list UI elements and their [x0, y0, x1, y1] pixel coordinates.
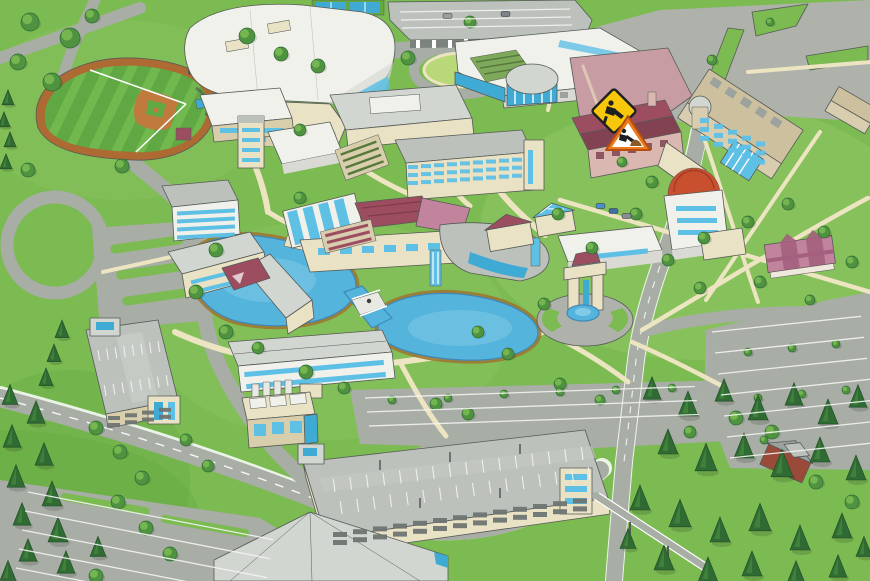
residence-tower[interactable]	[162, 180, 240, 241]
campus-map-illustration	[0, 0, 870, 581]
campus-map-canvas	[0, 0, 870, 581]
